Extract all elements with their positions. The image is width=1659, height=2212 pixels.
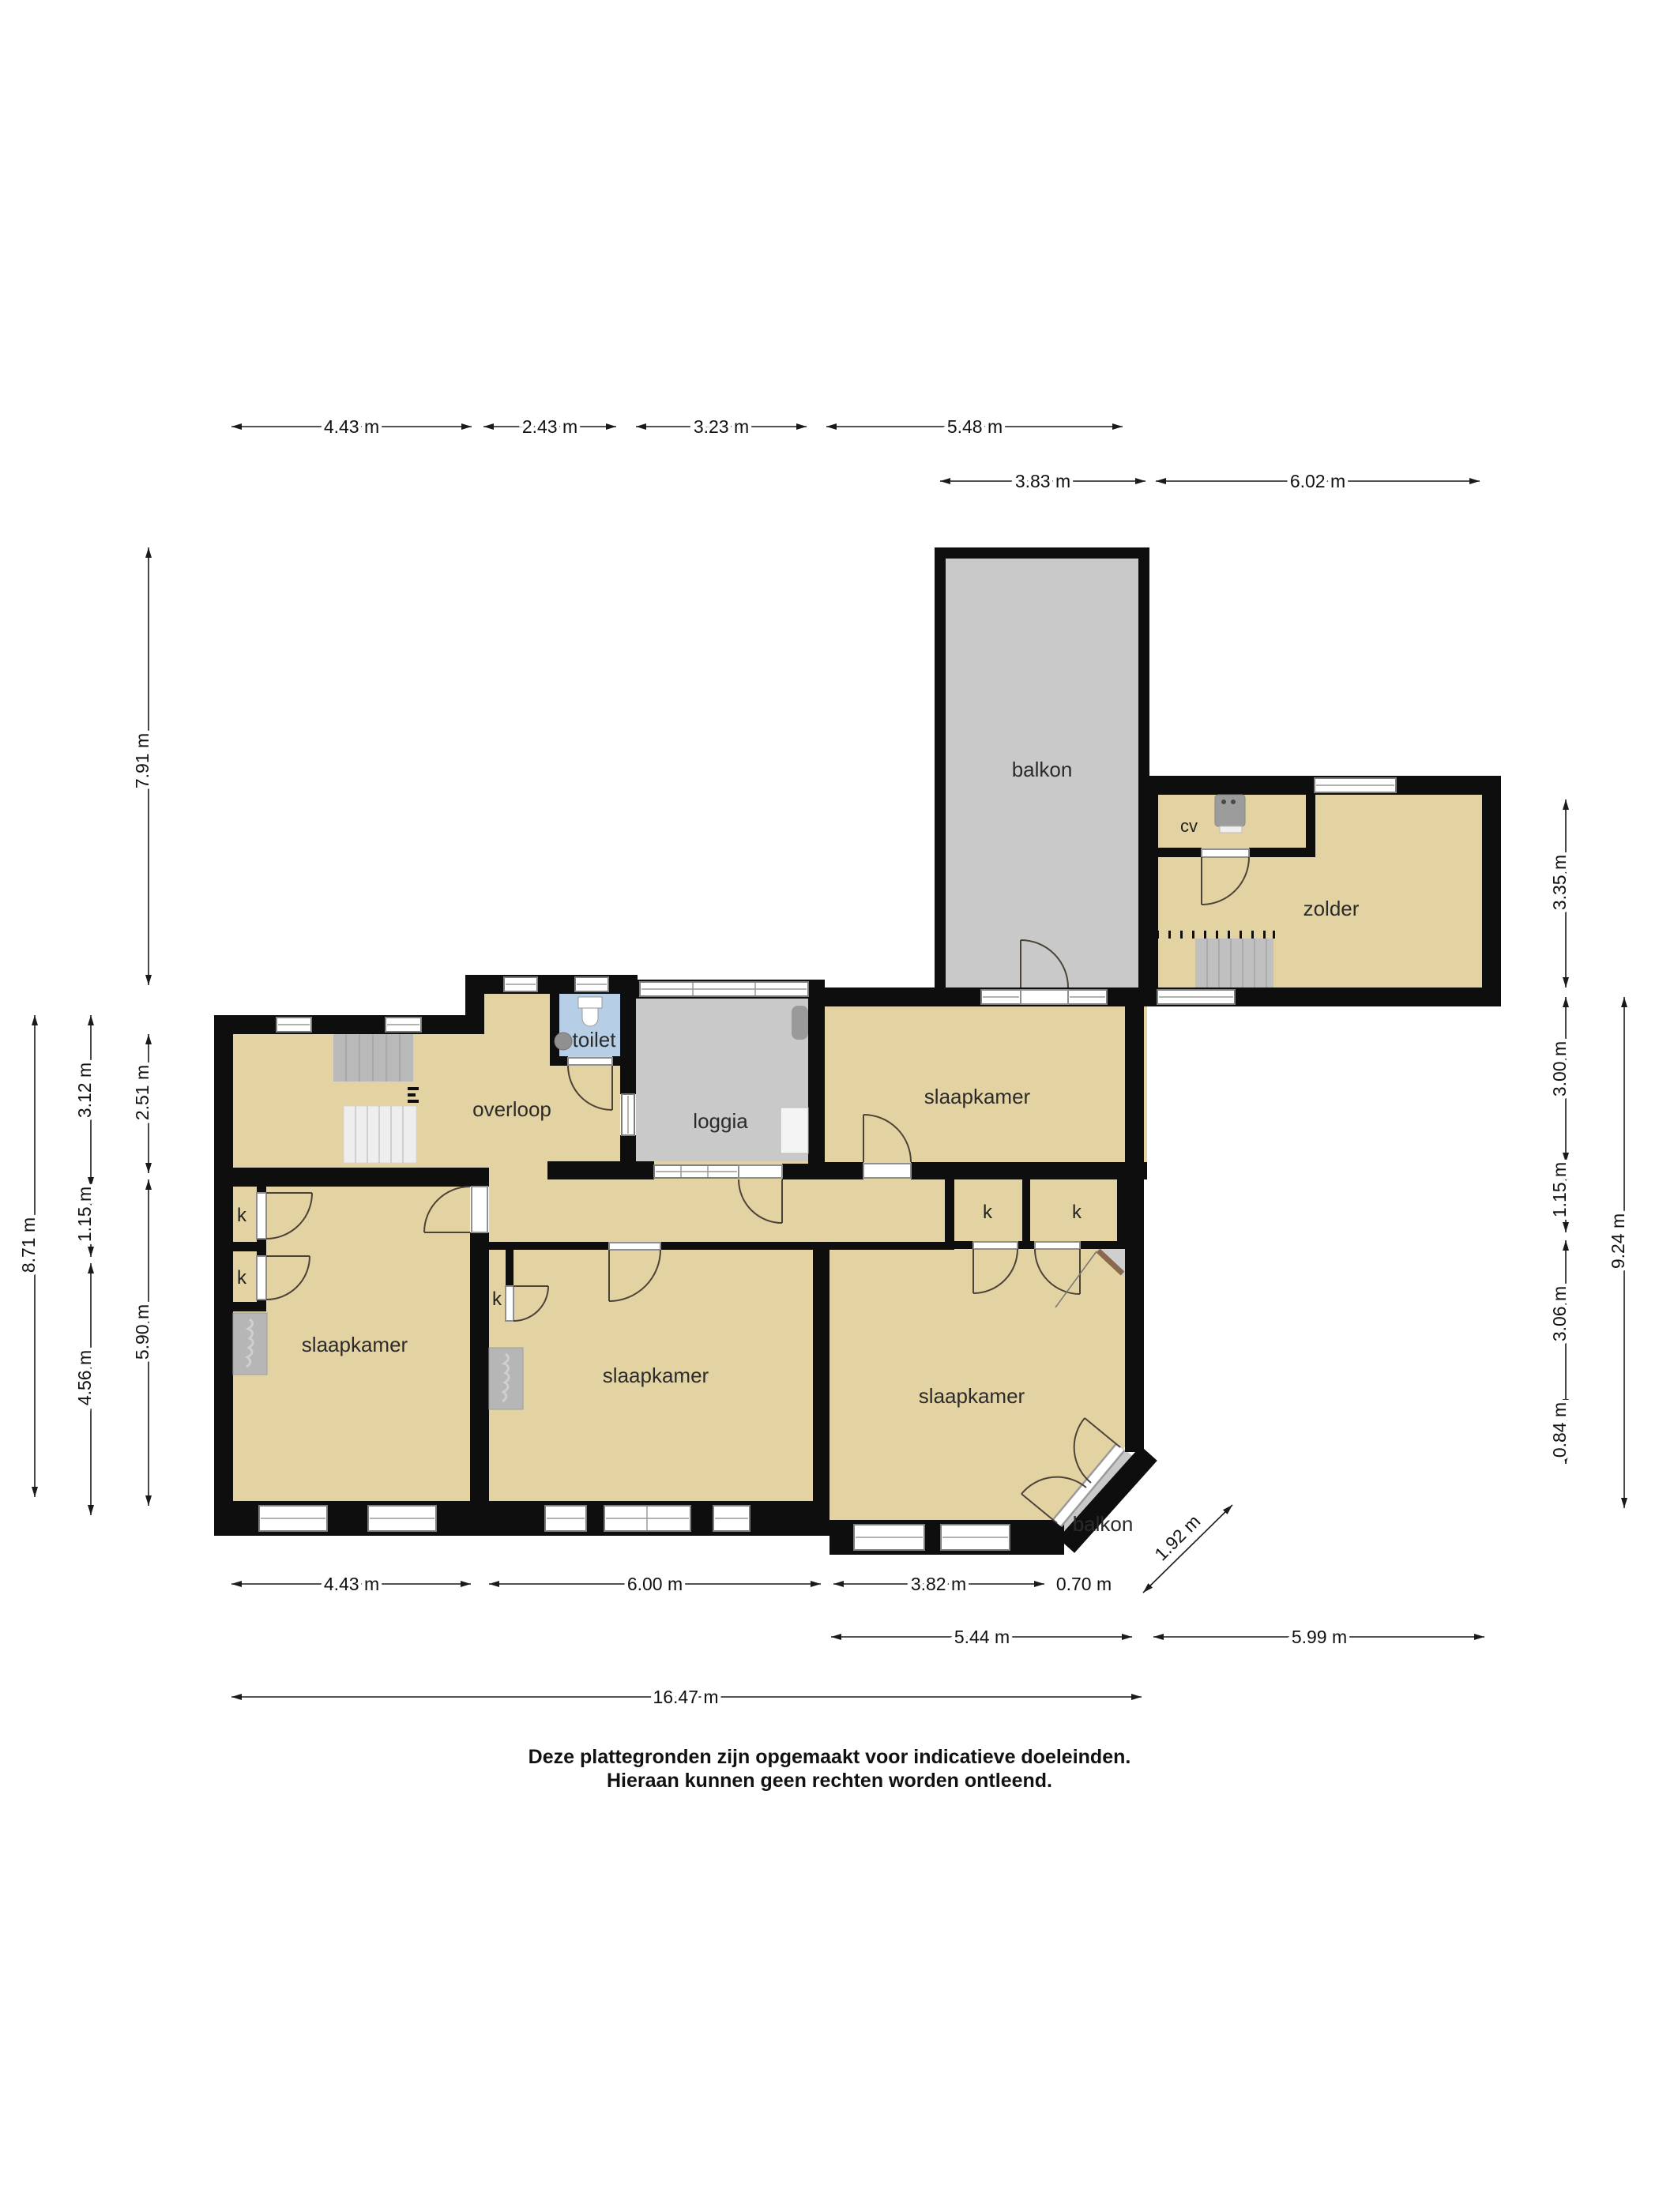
dim-bottom2-2: 5.99 m xyxy=(1292,1627,1347,1647)
wall xyxy=(470,1232,489,1504)
wall xyxy=(1125,987,1144,1452)
wall xyxy=(470,1168,489,1187)
dim-left-115: 1.15 m xyxy=(74,1187,95,1242)
wall xyxy=(1018,1241,1035,1249)
wall xyxy=(620,1164,654,1179)
window xyxy=(545,1506,586,1531)
floorplan-canvas: balkon zolder cv toilet loggia overloop … xyxy=(0,0,1659,2212)
wall xyxy=(954,1241,973,1249)
wall xyxy=(1080,1241,1125,1249)
dim-bottom2-1: 5.44 m xyxy=(954,1627,1010,1647)
wall xyxy=(620,980,636,1094)
window-loggia-top xyxy=(640,982,808,996)
wall xyxy=(1482,776,1501,1006)
wall xyxy=(214,1015,233,1536)
dim-bottom-3: 3.82 m xyxy=(911,1574,966,1594)
wall xyxy=(1139,776,1158,1006)
dim-left-871: 8.71 m xyxy=(18,1217,39,1273)
wall xyxy=(465,975,638,994)
window xyxy=(575,977,608,991)
room-label-balkon-large: balkon xyxy=(1012,758,1073,781)
dim-right-306: 3.06 m xyxy=(1549,1286,1570,1341)
dim-left-312: 3.12 m xyxy=(74,1063,95,1118)
window xyxy=(854,1525,924,1550)
wall xyxy=(782,1164,825,1179)
window xyxy=(504,977,537,991)
dim-diagonal-1: 1.92 m xyxy=(1150,1510,1204,1564)
wall xyxy=(550,1056,568,1066)
wall xyxy=(1249,848,1315,857)
wall xyxy=(550,994,559,1066)
room-label-slaapkamer-middle: slaapkamer xyxy=(603,1364,709,1387)
window xyxy=(981,990,1021,1004)
window-zolder-top xyxy=(1315,778,1396,792)
wall xyxy=(935,547,946,987)
room-label-slaapkamer-bottom-right: slaapkamer xyxy=(919,1384,1025,1408)
dim-right-335: 3.35 m xyxy=(1549,855,1570,910)
wall xyxy=(214,1015,480,1034)
staircase-up xyxy=(333,1034,413,1082)
wall xyxy=(233,1242,266,1251)
room-label-toilet: toilet xyxy=(573,1028,617,1051)
window xyxy=(1068,990,1107,1004)
dim-right-924: 9.24 m xyxy=(1608,1213,1628,1269)
wall xyxy=(612,1056,620,1066)
wardrobe-left xyxy=(233,1313,267,1375)
dim-left-791: 7.91 m xyxy=(132,733,152,788)
closet-label-3: k xyxy=(492,1288,502,1310)
dim-right-300: 3.00 m xyxy=(1549,1041,1570,1097)
dim-bottom-1: 4.43 m xyxy=(324,1574,379,1594)
closet-label-2: k xyxy=(237,1267,247,1288)
window xyxy=(259,1506,327,1531)
wall xyxy=(945,1179,954,1242)
room-label-slaapkamer-left: slaapkamer xyxy=(302,1333,408,1356)
wall xyxy=(1117,1179,1125,1241)
room-label-overloop: overloop xyxy=(472,1097,551,1121)
room-label-zolder: zolder xyxy=(1303,897,1360,920)
wall xyxy=(935,547,1149,559)
closet-label-5: k xyxy=(1072,1202,1082,1223)
dim-bottom-2: 6.00 m xyxy=(627,1574,683,1594)
wall xyxy=(1158,848,1202,857)
sink-icon xyxy=(555,1033,572,1050)
dim-left-251: 2.51 m xyxy=(132,1065,152,1120)
staircase-down xyxy=(344,1106,416,1163)
window xyxy=(368,1506,436,1531)
wall xyxy=(214,1168,470,1187)
wall xyxy=(813,1248,829,1536)
room-label-loggia: loggia xyxy=(693,1109,748,1133)
window-overloop-loggia xyxy=(622,1094,634,1135)
dim-top-3: 3.23 m xyxy=(694,416,749,437)
dim-top2-2: 6.02 m xyxy=(1290,471,1345,491)
wall xyxy=(233,1302,266,1311)
floors xyxy=(233,559,1482,1542)
wall xyxy=(620,1135,636,1164)
closet-label-4: k xyxy=(983,1202,993,1223)
wardrobe-middle xyxy=(489,1348,523,1409)
window xyxy=(604,1506,690,1531)
loggia-bench xyxy=(781,1108,808,1153)
closet-label-1: k xyxy=(237,1205,247,1226)
dim-top-4: 5.48 m xyxy=(947,416,1003,437)
dim-right-115: 1.15 m xyxy=(1549,1162,1570,1217)
closet-zone-floor xyxy=(954,1179,1125,1241)
dim-top2-1: 3.83 m xyxy=(1015,471,1070,491)
window xyxy=(386,1018,421,1032)
dim-left-590: 5.90 m xyxy=(132,1304,152,1360)
floorplan-page: balkon zolder cv toilet loggia overloop … xyxy=(0,0,1659,2212)
wall xyxy=(1022,1179,1030,1242)
dim-bottom3-1: 16.47 m xyxy=(653,1687,718,1707)
dim-top-2: 2.43 m xyxy=(522,416,577,437)
window-zolder-bottom xyxy=(1157,990,1235,1004)
loggia-heater xyxy=(792,1006,808,1040)
wall xyxy=(825,1162,863,1179)
room-label-cv: cv xyxy=(1180,816,1198,836)
window xyxy=(276,1018,311,1032)
wall xyxy=(911,1162,1147,1179)
window xyxy=(713,1506,750,1531)
dim-top-1: 4.43 m xyxy=(324,416,379,437)
disclaimer-line-2: Hieraan kunnen geen rechten worden ontle… xyxy=(607,1770,1052,1792)
disclaimer-line-1: Deze plattegronden zijn opgemaakt voor i… xyxy=(529,1746,1131,1768)
window-loggia-bottom xyxy=(654,1165,739,1178)
room-label-slaapkamer-top-right: slaapkamer xyxy=(924,1085,1031,1108)
disclaimer: Deze plattegronden zijn opgemaakt voor i… xyxy=(529,1746,1131,1792)
window xyxy=(941,1525,1010,1550)
wall xyxy=(506,1248,513,1286)
boiler-icon xyxy=(1215,795,1245,833)
dim-right-084: 0.84 m xyxy=(1549,1402,1570,1458)
room-label-balkon-small: balkon xyxy=(1073,1512,1134,1536)
dim-left-456: 4.56 m xyxy=(74,1350,95,1405)
wall xyxy=(660,1242,954,1250)
wall xyxy=(808,980,825,1179)
dim-bottom-4: 0.70 m xyxy=(1056,1574,1112,1594)
